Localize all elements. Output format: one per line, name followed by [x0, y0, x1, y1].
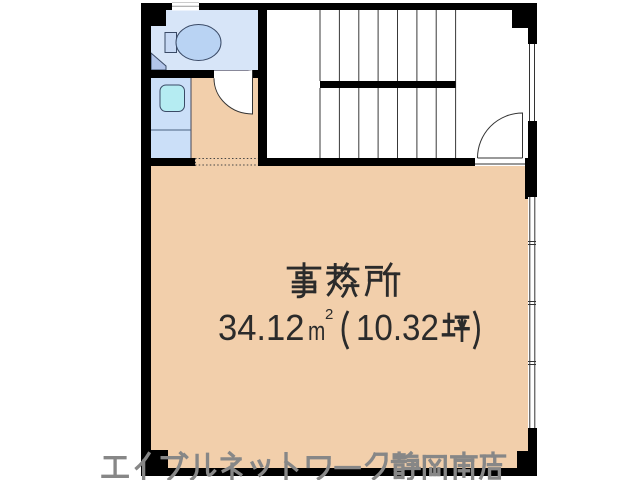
svg-text:2: 2 [325, 306, 333, 323]
svg-text:m: m [308, 317, 325, 346]
svg-text:10.32: 10.32 [356, 309, 439, 349]
svg-text:34.12: 34.12 [218, 308, 304, 348]
